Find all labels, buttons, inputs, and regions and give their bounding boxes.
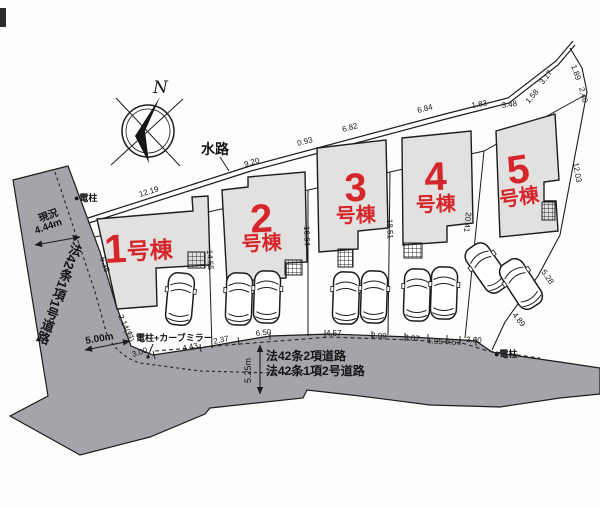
dim-3-60: 3.60 bbox=[466, 335, 483, 345]
pole-mirror-label: 電柱+カーブミラー bbox=[136, 332, 213, 343]
dim-3-48: 3.48 bbox=[501, 99, 518, 110]
hatch-square-lot2 bbox=[285, 260, 302, 275]
building-4-label-suffix: 号棟 bbox=[415, 191, 457, 216]
dim-12-19: 12.19 bbox=[138, 184, 160, 199]
car-lot4-a bbox=[401, 268, 434, 321]
dim-6-50: 6.50 bbox=[255, 327, 272, 338]
road-law-42-2: 法42条2項道路 bbox=[266, 348, 347, 363]
dim-6-84: 6.84 bbox=[416, 102, 434, 115]
site-plan-svg: 水路12.199.200.936.826.841.833.481.583.171… bbox=[0, 0, 600, 508]
dim-12-03: 12.03 bbox=[571, 162, 583, 184]
dim-0-93: 0.93 bbox=[296, 135, 314, 148]
dim-4-57: 4.57 bbox=[326, 329, 342, 338]
scan-artifact bbox=[0, 8, 6, 27]
building-4-label-num: 4 bbox=[424, 155, 449, 200]
car-lot2-a bbox=[223, 272, 256, 325]
waterway-leader-line bbox=[220, 157, 229, 171]
dim-3-17: 3.17 bbox=[537, 68, 554, 86]
dim-4-89: 4.89 bbox=[510, 311, 527, 329]
hatch-square-lot5 bbox=[542, 202, 555, 220]
car-lot3-a bbox=[330, 271, 363, 324]
building-3-label-num: 3 bbox=[344, 166, 368, 211]
pole-label-top: ●電柱 bbox=[74, 192, 97, 203]
site-plan-page: 水路12.199.200.936.826.841.833.481.583.171… bbox=[0, 0, 600, 508]
dim-5-25m: 5.25m bbox=[243, 358, 253, 383]
dim-0-57: 0.57 bbox=[445, 337, 462, 347]
hatch-square-lot3 bbox=[338, 249, 353, 267]
pole-label-right: ●電柱 bbox=[494, 348, 517, 359]
dim-2-99: 2.99 bbox=[371, 331, 387, 341]
dim-18-51: 18.51 bbox=[385, 219, 395, 240]
waterway-label: 水路 bbox=[201, 141, 230, 157]
building-2-label-suffix: 号棟 bbox=[241, 230, 283, 256]
dim-1-95: 1.95 bbox=[427, 336, 444, 346]
parked-cars bbox=[162, 238, 548, 326]
car-lot2-b bbox=[251, 270, 284, 323]
compass-n-label: N bbox=[152, 78, 169, 98]
dim-9-20: 9.20 bbox=[243, 156, 261, 169]
hatch-square-lot4 bbox=[404, 243, 422, 258]
dim-1-83: 1.83 bbox=[471, 98, 488, 110]
dim-5-28: 5.28 bbox=[539, 268, 556, 286]
pole-mirror-dot bbox=[146, 355, 149, 358]
road-law-42-1-2: 法42条1項2号道路 bbox=[266, 363, 366, 378]
lot-divider-3-4 bbox=[388, 172, 390, 335]
dim-3-07: 3.07 bbox=[404, 333, 421, 343]
car-lot4-b bbox=[428, 266, 461, 319]
car-lot3-b bbox=[358, 270, 391, 323]
building-3-label-suffix: 号棟 bbox=[335, 202, 377, 227]
dim-16-64: 16.64 bbox=[302, 226, 312, 247]
dim-14-55: 14.55 bbox=[205, 250, 215, 271]
hatch-square-lot1 bbox=[188, 252, 205, 268]
compass-rose bbox=[111, 97, 183, 166]
dim-6-82: 6.82 bbox=[341, 121, 359, 134]
dim-2-40: 2.40 bbox=[577, 86, 590, 104]
car-lot1 bbox=[162, 272, 197, 327]
